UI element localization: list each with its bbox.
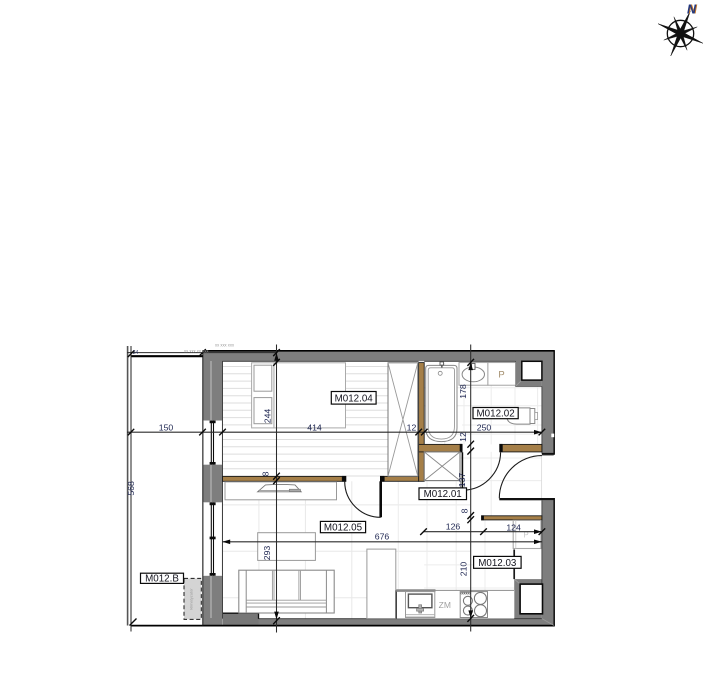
svg-text:676: 676 <box>375 532 390 542</box>
svg-text:N: N <box>687 3 697 17</box>
svg-text:xx xxx xx xxx: xx xxx xx xxx <box>184 349 209 354</box>
svg-text:8: 8 <box>261 471 271 476</box>
svg-text:12: 12 <box>407 422 417 432</box>
svg-text:8: 8 <box>460 508 470 513</box>
svg-text:293: 293 <box>262 546 272 561</box>
svg-text:250: 250 <box>477 422 492 432</box>
svg-text:414: 414 <box>307 422 322 432</box>
svg-text:12: 12 <box>458 432 468 442</box>
svg-text:178: 178 <box>458 384 468 399</box>
svg-text:244: 244 <box>263 409 273 424</box>
svg-text:ZM: ZM <box>439 600 451 610</box>
svg-text:xx xxx xxx: xx xxx xxx <box>215 343 235 348</box>
svg-text:568: 568 <box>126 481 136 496</box>
svg-text:126: 126 <box>446 522 461 532</box>
svg-text:124: 124 <box>506 523 521 533</box>
svg-text:210: 210 <box>458 562 468 577</box>
svg-text:klimatyzator: klimatyzator <box>189 588 194 610</box>
svg-text:M012.03: M012.03 <box>478 558 517 569</box>
svg-text:M012.B: M012.B <box>145 574 179 585</box>
svg-text:M012.01: M012.01 <box>424 489 462 500</box>
svg-text:137: 137 <box>457 473 467 488</box>
svg-text:P: P <box>498 370 504 381</box>
svg-text:150: 150 <box>159 422 174 432</box>
svg-text:M012.04: M012.04 <box>335 393 374 404</box>
svg-text:24: 24 <box>133 350 139 356</box>
svg-text:M012.05: M012.05 <box>324 523 363 534</box>
svg-text:M012.02: M012.02 <box>477 408 515 419</box>
